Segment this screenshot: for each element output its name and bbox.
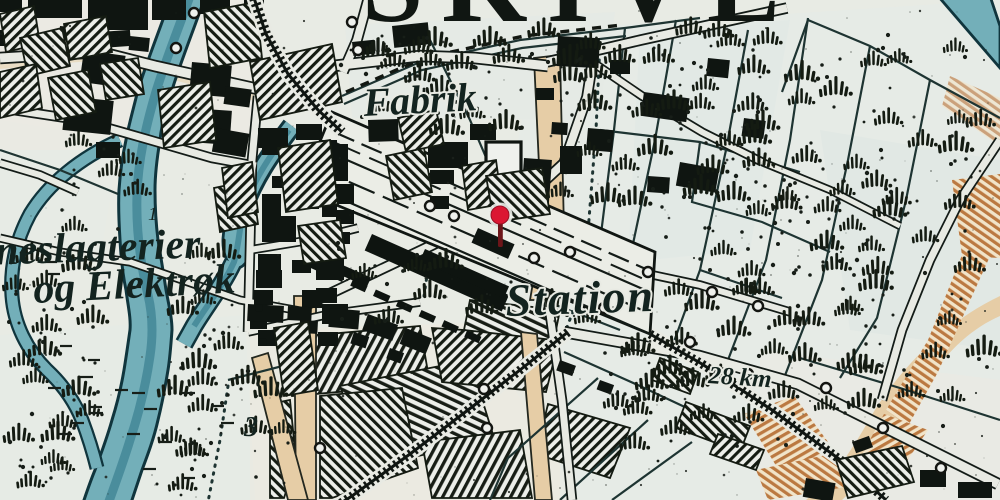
svg-text:1: 1 (148, 204, 158, 225)
svg-text:3: 3 (243, 412, 258, 443)
svg-text:28 km: 28 km (707, 362, 773, 393)
svg-text:Fabrik: Fabrik (361, 74, 478, 125)
svg-text:SKIVE: SKIVE (362, 0, 799, 45)
svg-text:Station: Station (505, 270, 656, 326)
